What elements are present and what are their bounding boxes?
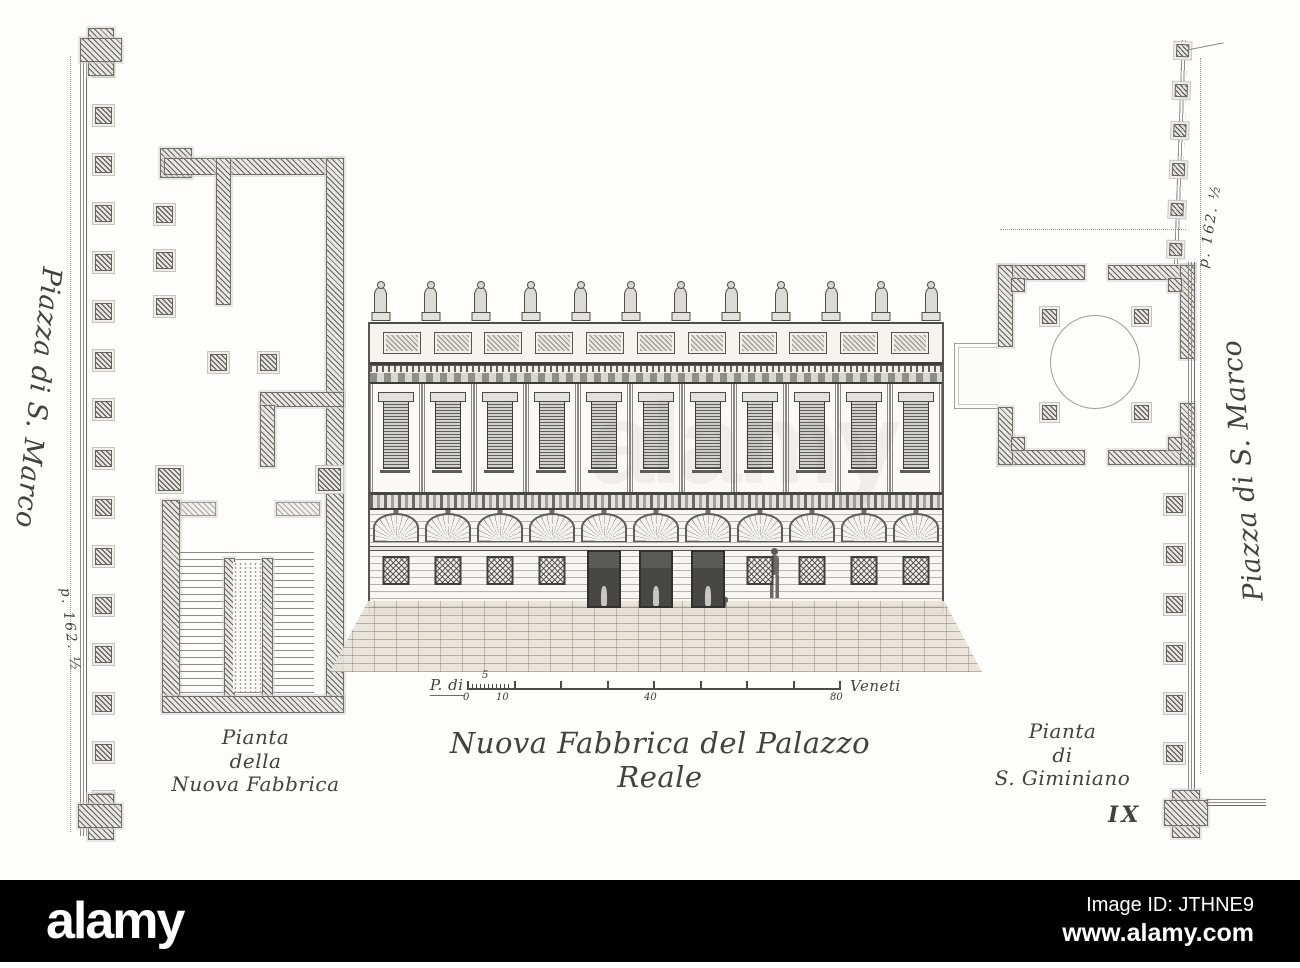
colonnade-pier — [95, 254, 112, 271]
colonnade-pier — [1170, 203, 1183, 216]
dome-pier — [1134, 309, 1149, 324]
roof-statue — [624, 287, 637, 314]
scale-tick — [653, 681, 655, 690]
plan-pier — [156, 206, 173, 223]
lunette-window — [685, 513, 731, 542]
scale-label-80: 80 — [830, 692, 843, 703]
left-pavement-dotted-line — [70, 56, 71, 832]
plan-pier — [318, 468, 341, 491]
lunette-window — [633, 513, 679, 542]
colonnade-pier — [1176, 44, 1189, 57]
scale-suffix: Veneti — [850, 677, 901, 695]
arcade-bay — [578, 510, 630, 606]
colonnade-pier — [95, 303, 112, 320]
plan-s-giminiano — [998, 265, 1193, 465]
caption-line: S. Giminiano — [980, 767, 1145, 791]
scale-label-0: 0 — [463, 692, 469, 703]
colonnade-pier — [1166, 695, 1183, 712]
right-pier-colonnade — [1166, 496, 1183, 762]
ground-opening — [851, 556, 878, 585]
plan-subroom-wall — [260, 405, 275, 467]
arcade-bay — [890, 510, 942, 606]
right-pavement-dotted-line — [1200, 58, 1201, 774]
scale-tick — [514, 681, 516, 690]
ground-opening — [435, 556, 462, 585]
lunette-window — [893, 513, 939, 542]
arcade-bay — [370, 510, 422, 606]
caption-line: di — [980, 744, 1145, 768]
colonnade-pier — [1166, 645, 1183, 662]
arcade-bay — [474, 510, 526, 606]
window-bay — [578, 384, 630, 492]
church-left-wall — [998, 407, 1013, 465]
right-bottom-corner-pier — [1164, 800, 1208, 826]
scale-tick — [560, 681, 562, 690]
colonnade-pier — [95, 597, 112, 614]
scale-prefix: P. di — [430, 676, 464, 696]
relief-panel — [840, 332, 878, 354]
window — [747, 401, 773, 469]
plan-pier — [156, 298, 173, 315]
right-bottom-wall-line — [1206, 799, 1266, 806]
left-piazza-wall — [80, 50, 87, 836]
dome-circle — [1050, 315, 1140, 409]
piano-nobile — [370, 384, 942, 494]
lunette-window — [529, 513, 575, 542]
ground-opening — [539, 556, 566, 585]
plate-number: IX — [1108, 802, 1141, 828]
roof-statue-row — [368, 282, 944, 322]
window — [903, 401, 929, 469]
ground-opening — [747, 556, 774, 585]
left-bottom-corner-pier — [78, 804, 122, 828]
lunette-window — [789, 513, 835, 542]
scale-tick — [607, 681, 609, 690]
scale-label-40: 40 — [644, 692, 657, 703]
scale-ticks — [467, 681, 841, 690]
relief-panel — [434, 332, 472, 354]
relief-panel — [484, 332, 522, 354]
colonnade-pier — [95, 401, 112, 418]
plan-entry-wall — [276, 502, 320, 516]
scale-tick — [839, 681, 841, 690]
roof-statue — [775, 287, 788, 314]
plan-pier — [210, 354, 227, 371]
left-pier-colonnade — [95, 58, 112, 810]
window — [539, 401, 565, 469]
relief-panel — [637, 332, 675, 354]
relief-panel — [586, 332, 624, 354]
lunette-window — [425, 513, 471, 542]
roof-statue — [474, 287, 487, 314]
window-bay — [474, 384, 526, 492]
window-bay — [890, 384, 942, 492]
scale-tick — [746, 681, 748, 690]
scale-tick — [467, 681, 469, 690]
dome-pier — [1042, 309, 1057, 324]
lunette-window — [737, 513, 783, 542]
dome-pier — [1134, 405, 1149, 420]
colonnade-pier — [95, 548, 112, 565]
church-corner-pier — [1168, 437, 1182, 451]
colonnade-pier — [95, 695, 112, 712]
colonnade-pier — [1173, 123, 1186, 136]
window-bay — [370, 384, 422, 492]
ground-opening — [639, 550, 673, 608]
colonnade-pier — [1166, 496, 1183, 513]
roof-statue — [674, 287, 687, 314]
caption-line: della — [158, 750, 353, 774]
caption-line: Pianta — [980, 720, 1145, 744]
plan-pier — [156, 252, 173, 269]
lunette-window — [841, 513, 887, 542]
relief-panel — [739, 332, 777, 354]
arcade-bay — [526, 510, 578, 606]
ground-opening — [903, 556, 930, 585]
plan-inner-wall — [216, 158, 231, 305]
colonnade-pier — [1166, 546, 1183, 563]
colonnade-pier — [1169, 243, 1182, 256]
window-bay — [526, 384, 578, 492]
ground-opening — [691, 550, 725, 608]
scale-bar: P. di 5 0 10 40 80 Veneti — [430, 676, 908, 706]
relief-panel — [688, 332, 726, 354]
window-bay — [422, 384, 474, 492]
window — [643, 401, 669, 469]
colonnade-pier — [1166, 745, 1183, 762]
right-street-label: Piazza di S. Marco — [1213, 300, 1274, 641]
elevation-caption: Nuova Fabbrica del Palazzo Reale — [430, 726, 890, 794]
colonnade-pier — [95, 450, 112, 467]
church-corner-pier — [1168, 278, 1182, 292]
colonnade-pier — [95, 205, 112, 222]
alamy-logo: alamy — [46, 891, 183, 951]
window-bay — [786, 384, 838, 492]
caption-line: Pianta — [158, 726, 353, 750]
relief-panel — [891, 332, 929, 354]
roof-statue — [424, 287, 437, 314]
plan-stair-wall — [162, 500, 180, 710]
window-bay — [838, 384, 890, 492]
window — [695, 401, 721, 469]
window — [851, 401, 877, 469]
plan-nuova-fabbrica — [150, 140, 350, 740]
scale-label-10: 10 — [496, 692, 509, 703]
ground-opening — [383, 556, 410, 585]
arcade-bay — [422, 510, 474, 606]
ground-opening — [799, 556, 826, 585]
plan-right-wall — [326, 158, 344, 710]
roof-statue — [725, 287, 738, 314]
plan-stair-well-wall — [262, 558, 273, 698]
right-plan-caption: Pianta di S. Giminiano — [980, 720, 1145, 791]
church-dotted-reference — [1000, 229, 1186, 230]
ground-opening — [587, 550, 621, 608]
attic-relief-band — [370, 322, 942, 365]
colonnade-pier — [95, 156, 112, 173]
footer-credits: Image ID: JTHNE9 www.alamy.com — [1062, 893, 1254, 949]
window — [799, 401, 825, 469]
alamy-footer-bar: alamy Image ID: JTHNE9 www.alamy.com — [0, 880, 1300, 962]
plan-pier — [158, 468, 181, 491]
roof-statue — [875, 287, 888, 314]
window — [435, 401, 461, 469]
right-piazza-wall — [1188, 262, 1195, 805]
relief-panel — [789, 332, 827, 354]
left-street-label: Piazza di S. Marco — [5, 227, 71, 568]
colonnade-pier — [95, 499, 112, 516]
scale-tick — [793, 681, 795, 690]
frieze-band — [370, 494, 942, 510]
lunette-window — [373, 513, 419, 542]
church-corner-pier — [1011, 278, 1025, 292]
left-top-corner-pier — [80, 38, 122, 62]
palazzo-reale-elevation — [368, 282, 944, 614]
alamy-url: www.alamy.com — [1062, 918, 1254, 949]
scale-tick — [700, 681, 702, 690]
plan-chancel — [954, 343, 1001, 409]
scale-label-5: 5 — [482, 670, 488, 681]
arcade-bay — [838, 510, 890, 606]
roof-statue — [574, 287, 587, 314]
image-id: Image ID: JTHNE9 — [1062, 893, 1254, 918]
facade-body — [368, 322, 944, 614]
roof-statue — [524, 287, 537, 314]
colonnade-pier — [95, 646, 112, 663]
right-top-reference-line — [1186, 42, 1223, 50]
roof-statue — [374, 287, 387, 314]
colonnade-pier — [1172, 163, 1185, 176]
plan-stair-landing — [233, 562, 262, 692]
plan-top-wall — [164, 158, 342, 175]
roof-statue — [925, 287, 938, 314]
ground-arcade — [370, 510, 942, 606]
cornice — [370, 365, 942, 384]
dome-pier — [1042, 405, 1057, 420]
window — [591, 401, 617, 469]
colonnade-pier — [95, 352, 112, 369]
lunette-window — [581, 513, 627, 542]
plan-pier — [260, 354, 277, 371]
caption-line: Nuova Fabbrica — [158, 773, 353, 797]
lunette-window — [477, 513, 523, 542]
arcade-bay — [786, 510, 838, 606]
window-bay — [630, 384, 682, 492]
plan-entry-wall — [180, 502, 216, 516]
window — [487, 401, 513, 469]
roof-statue — [825, 287, 838, 314]
right-upper-pier-column — [1169, 44, 1189, 256]
church-corner-pier — [1011, 437, 1025, 451]
colonnade-pier — [1166, 596, 1183, 613]
right-scale-note: p. 162. ½ — [1193, 165, 1228, 286]
colonnade-pier — [1175, 84, 1188, 97]
relief-panel — [383, 332, 421, 354]
window-bay — [734, 384, 786, 492]
ground-opening — [487, 556, 514, 585]
window-bay — [682, 384, 734, 492]
colonnade-pier — [95, 107, 112, 124]
piazza-pavement — [330, 601, 982, 672]
engraving-sheet: Piazza di S. Marco p. 162. ½ Pianta dell… — [0, 0, 1300, 968]
left-plan-caption: Pianta della Nuova Fabbrica — [158, 726, 353, 797]
arcade-bay — [630, 510, 682, 606]
arcade-bay — [682, 510, 734, 606]
window — [383, 401, 409, 469]
relief-panel — [535, 332, 573, 354]
plan-bottom-wall — [162, 696, 344, 713]
colonnade-pier — [95, 744, 112, 761]
